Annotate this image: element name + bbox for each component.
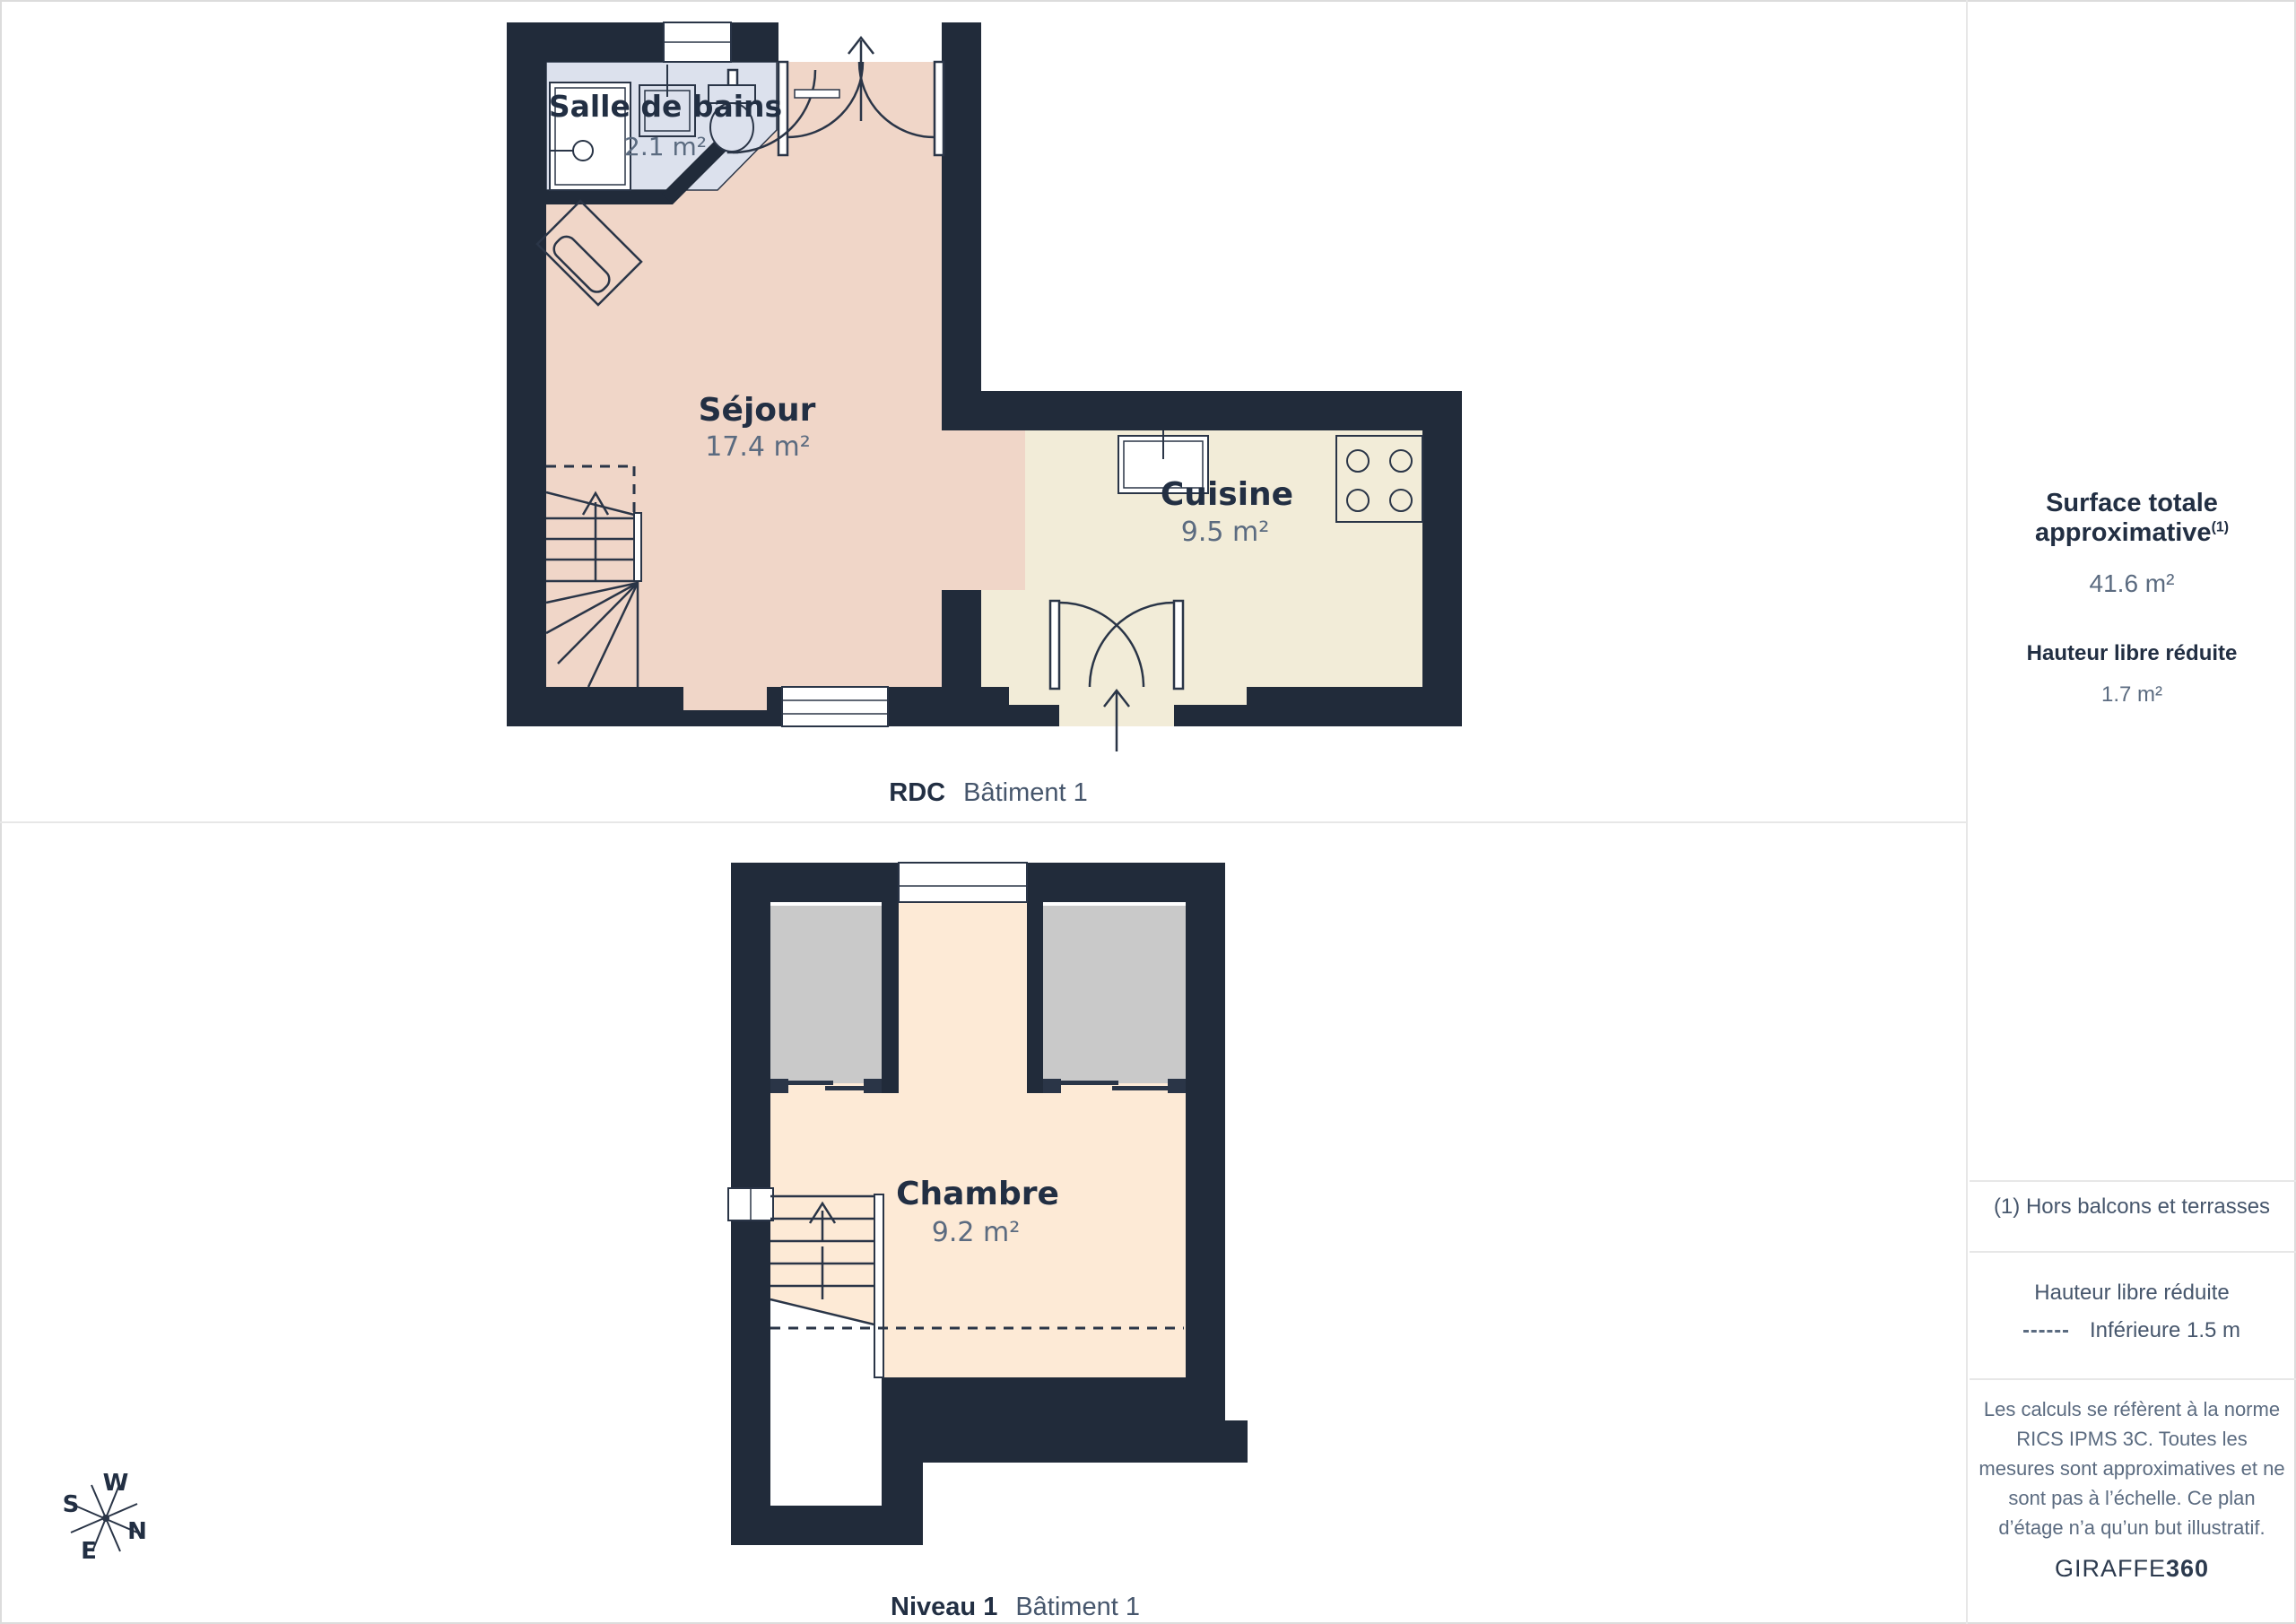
caption-building-name: Bâtiment 1 [963,778,1088,808]
window-icon [899,863,1027,902]
brand-name: GIRAFFE [2055,1555,2166,1582]
dashed-line-icon [2023,1330,2068,1333]
caption-building-name: Bâtiment 1 [1015,1593,1140,1622]
caption-floor-name: Niveau 1 [891,1593,997,1622]
caption-rdc: RDC Bâtiment 1 [889,778,1087,808]
summary-sidebar: Surface totale approximative(1) 41.6 m² … [1968,0,2296,1624]
total-area-section: Surface totale approximative(1) 41.6 m² … [1968,489,2296,708]
floorplan-niveau-1: Chambre 9.2 m² [709,843,1265,1560]
closet-right [1043,906,1186,1083]
footnote-text: (1) Hors balcons et terrasses [1968,1194,2296,1220]
panel-divider [0,821,1968,823]
floorplan-page: Salle de bains 2.1 m² Séjour 17.4 m² Cui… [0,0,2296,1624]
room-area: 9.2 m² [932,1217,1021,1248]
disclaimer-text: Les calculs se réfèrent à la norme RICS … [1976,1394,2288,1542]
room-label: Séjour [699,392,816,429]
compass-south-label: S [63,1491,80,1518]
legend-row: Inférieure 1.5 m [1968,1318,2296,1343]
room-area: 9.5 m² [1181,517,1270,548]
stove-icon [1336,436,1422,522]
closet-left [770,906,882,1083]
room-area: 17.4 m² [705,431,811,463]
brand-logo: GIRAFFE360 [1968,1555,2296,1583]
n1-floors [770,902,1186,1377]
floorplan-rdc: Salle de bains 2.1 m² Séjour 17.4 m² Cui… [493,9,1480,798]
sidebar-section-divider [1970,1378,2296,1380]
compass-icon: W S N E [52,1462,204,1596]
room-label: Chambre [896,1176,1059,1212]
sidebar-section-divider [1970,1251,2296,1253]
reduced-height-value: 1.7 m² [1968,682,2296,708]
window-icon [782,687,888,726]
compass-west-label: W [103,1470,129,1497]
brand-suffix: 360 [2166,1555,2209,1582]
total-area-value: 41.6 m² [1968,569,2296,598]
legend-entry: Inférieure 1.5 m [2090,1318,2240,1343]
room-label: Cuisine [1161,476,1293,513]
reduced-height-label: Hauteur libre réduite [1968,641,2296,666]
sidebar-section-divider [1970,1180,2296,1182]
total-area-label: Surface totale approximative(1) [1968,489,2296,548]
stairwell-void [770,1299,882,1506]
compass-east-label: E [81,1538,97,1565]
compass-north-label: N [127,1518,147,1545]
room-area: 2.1 m² [624,132,707,161]
total-area-label-text: Surface totale approximative [2035,489,2218,547]
legend-title: Hauteur libre réduite [1968,1281,2296,1306]
caption-niveau-1: Niveau 1 Bâtiment 1 [891,1593,1140,1622]
caption-floor-name: RDC [889,778,945,808]
total-area-footnote-marker: (1) [2212,519,2229,534]
room-label: Salle de bains [549,89,782,124]
